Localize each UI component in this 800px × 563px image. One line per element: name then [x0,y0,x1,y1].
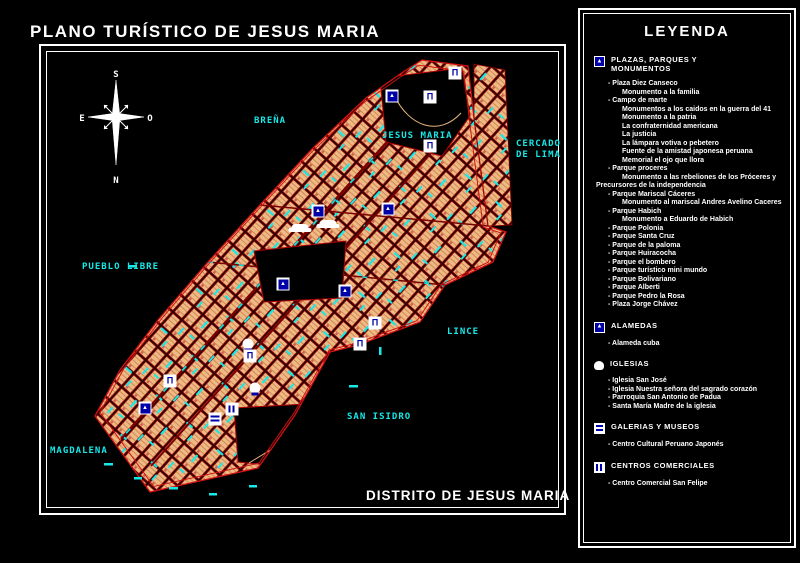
plan-sheet: PLANO TURÍSTICO DE JESUS MARIA [0,0,800,563]
legend-item: - Parque Mariscal Cáceres [594,191,782,200]
museum-icon [594,423,605,434]
district-label-0: BREÑA [254,116,286,127]
legend-item: Fuente de la amistad japonesa peruana [594,148,782,157]
legend-section-title: CENTROS COMERCIALES [611,461,715,470]
district-label-1: JESUS MARIA [382,131,453,142]
museum-icon [209,413,222,426]
legend-item: Monumento a la patria [594,114,782,123]
church-icon [164,375,177,388]
legend-section-2: IGLESIAS [594,359,782,370]
church-icon [354,338,367,351]
street-grid [49,55,556,505]
legend-item: - Plaza Diez Canseco [594,80,782,89]
legend-section-1: ALAMEDAS [594,321,782,333]
park-icon [594,56,605,67]
legend-item: - Centro Cultural Peruano Japonés [594,441,782,450]
legend-item: - Iglesia San José [594,377,782,386]
legend-item: - Iglesia Nuestra señora del sagrado cor… [594,386,782,395]
legend-item: Memorial el ojo que llora [594,157,782,166]
legend-item: - Parroquia San Antonio de Padua [594,394,782,403]
legend-item: - Parque Polonia [594,225,782,234]
park-icon [386,90,399,103]
park-icon [312,205,325,218]
church-icon [594,361,604,370]
compass-west-label: O [147,114,153,124]
dome-church-icon [243,339,254,350]
legend-item: - Plaza Jorge Chávez [594,301,782,310]
district-label-4: LINCE [447,327,479,338]
legend-section-title: GALERIAS Y MUSEOS [611,422,700,431]
district-label-3: PUEBLO LIBRE [82,262,159,273]
legend-item: Monumentos a los caidos en la guerra del… [594,106,782,115]
legend-item: - Parque Alberti [594,284,782,293]
legend-item: Monumento al mariscal Andres Avelino Cac… [594,199,782,208]
church-icon [244,350,257,363]
legend-item: - Parque Huiracocha [594,250,782,259]
legend-item: - Parque proceres [594,165,782,174]
legend-item: Monumento a las rebeliones de los Prócer… [594,174,782,191]
legend-inner-frame: LEYENDA PLAZAS, PARQUES Y MONUMENTOS- Pl… [583,13,791,543]
park-icon [339,285,352,298]
legend-item: Monumento a Eduardo de Habich [594,216,782,225]
park-icon [277,278,290,291]
compass-north-label: N [113,176,118,186]
park-icon [139,402,152,415]
legend-item: La justicia [594,131,782,140]
monument-icon [320,220,337,228]
legend-section-title: IGLESIAS [610,359,649,368]
legend-item: - Parque Santa Cruz [594,233,782,242]
legend-item: - Campo de marte [594,97,782,106]
church-icon [369,317,382,330]
legend-item: - Centro Comercial San Felipe [594,480,782,489]
district-label-2: CERCADO DE LIMA [516,139,561,161]
mall-icon [594,462,605,473]
legend-item: - Parque Pedro la Rosa [594,293,782,302]
district-label-6: MAGDALENA [50,446,108,457]
dome-church-icon [250,383,261,394]
legend-item: - Parque el bombero [594,259,782,268]
monument-icon [292,224,309,232]
compass-rose: S E O N [79,70,153,186]
church-icon [424,91,437,104]
compass-east-label: E [79,114,84,124]
church-icon [449,67,462,80]
alameda-icon [594,322,605,333]
legend-item: La lámpara votiva o pebetero [594,140,782,149]
mall-icon [226,403,239,416]
page-title: PLANO TURÍSTICO DE JESUS MARIA [30,22,380,42]
compass-south-label: S [113,70,118,80]
legend-item: - Santa María Madre de la iglesia [594,403,782,412]
legend-item: Monumento a la familia [594,89,782,98]
legend-title: LEYENDA [584,23,790,40]
legend-item: - Parque turístico mini mundo [594,267,782,276]
legend-item: - Parque Habich [594,208,782,217]
legend-sections: PLAZAS, PARQUES Y MONUMENTOS- Plaza Diez… [584,40,790,488]
legend-panel: LEYENDA PLAZAS, PARQUES Y MONUMENTOS- Pl… [578,8,796,548]
legend-item: - Parque de la paloma [594,242,782,251]
legend-item: La confraternidad americana [594,123,782,132]
church-icon [424,140,437,153]
map-subtitle: DISTRITO DE JESUS MARIA [366,488,570,503]
legend-section-4: CENTROS COMERCIALES [594,461,782,473]
district-map: S E O N [49,55,556,505]
legend-section-0: PLAZAS, PARQUES Y MONUMENTOS [594,55,782,73]
legend-item: - Parque Bolivariano [594,276,782,285]
legend-item: - Alameda cuba [594,340,782,349]
district-label-5: SAN ISIDRO [347,412,411,423]
legend-section-3: GALERIAS Y MUSEOS [594,422,782,434]
legend-section-title: ALAMEDAS [611,321,658,330]
legend-section-title: PLAZAS, PARQUES Y MONUMENTOS [611,55,741,73]
park-icon [382,203,395,216]
